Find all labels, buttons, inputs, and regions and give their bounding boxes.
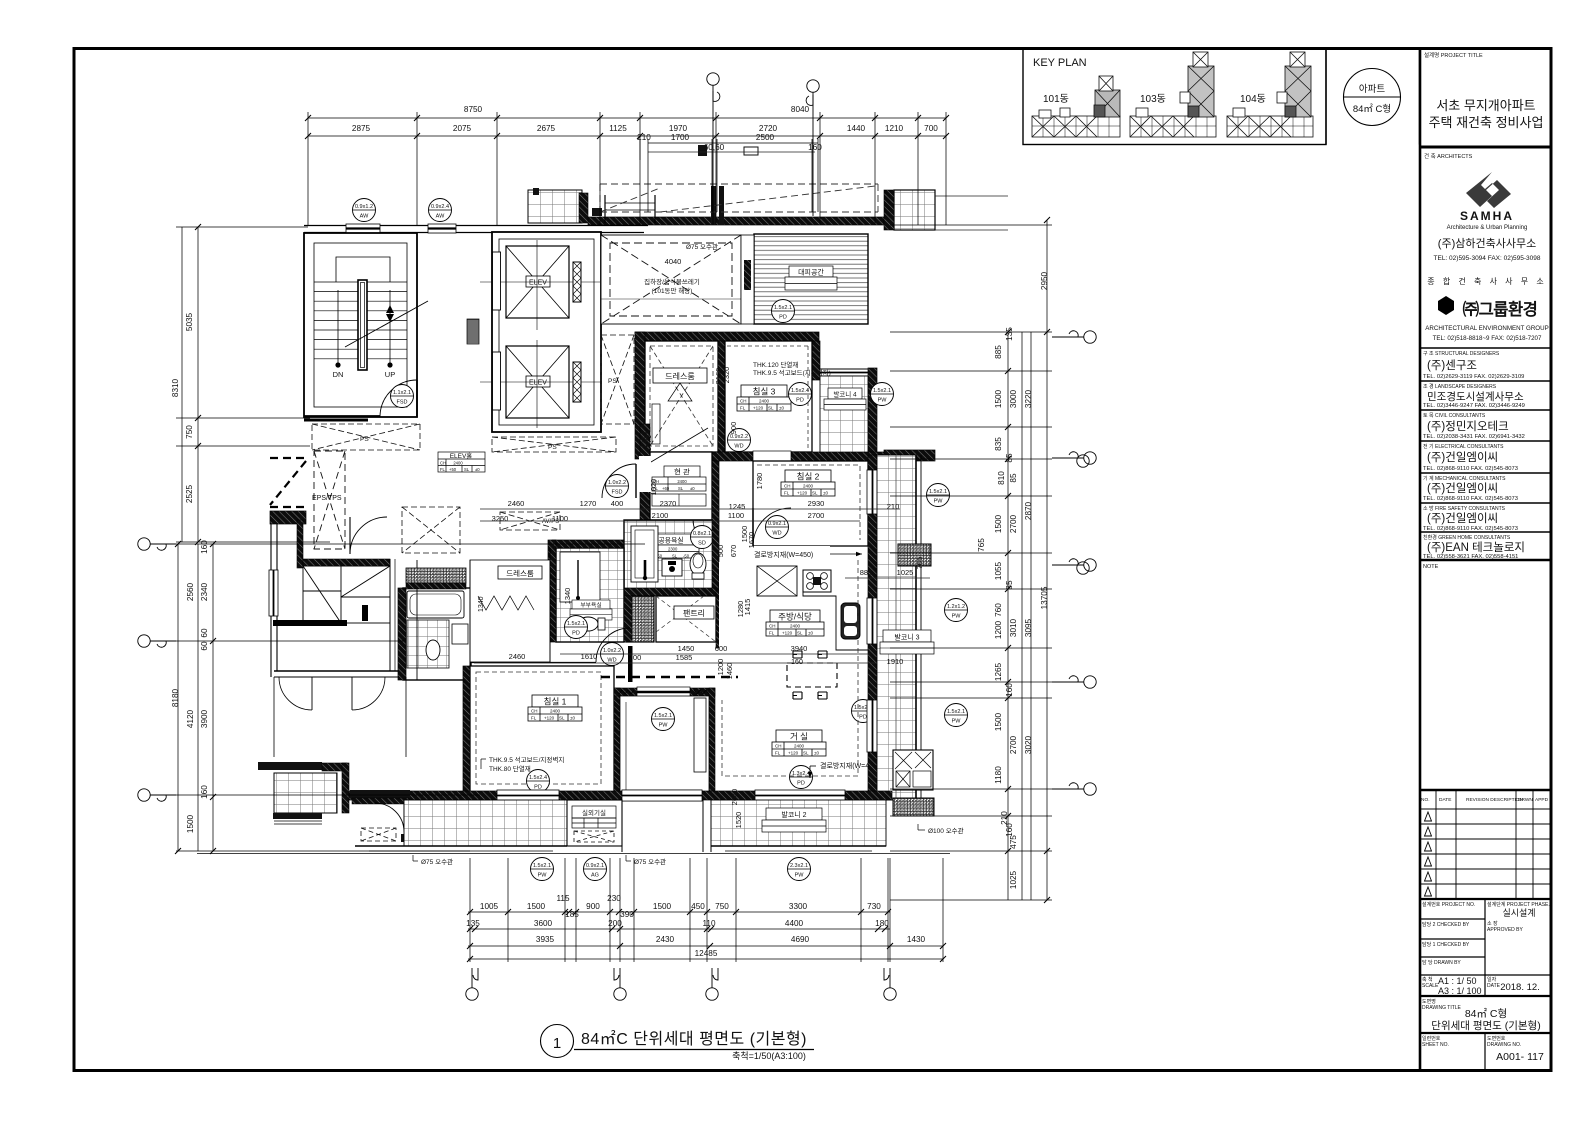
svg-text:실외기실: 실외기실	[582, 808, 606, 817]
svg-text:104동: 104동	[1240, 93, 1266, 105]
svg-text:2950: 2950	[1040, 271, 1049, 290]
svg-text:결로방지재(W=450): 결로방지재(W=450)	[754, 550, 813, 559]
svg-text:2075: 2075	[453, 124, 472, 133]
svg-text:±0: ±0	[808, 631, 813, 636]
svg-text:2460: 2460	[508, 499, 525, 508]
svg-text:12485: 12485	[695, 949, 718, 958]
svg-text:1500: 1500	[527, 902, 546, 911]
svg-text:2340: 2340	[200, 582, 209, 601]
svg-text:2700: 2700	[1009, 514, 1018, 533]
svg-text:설계단계 PROJECT PHASE.: 설계단계 PROJECT PHASE.	[1487, 901, 1550, 908]
svg-text:1125: 1125	[609, 124, 627, 133]
svg-text:103동: 103동	[1140, 93, 1166, 105]
svg-text:토 목 CIVIL CONSULTANTS: 토 목 CIVIL CONSULTANTS	[1423, 413, 1486, 419]
svg-text:500: 500	[716, 545, 725, 558]
svg-text:1520: 1520	[734, 812, 743, 829]
svg-text:AG: AG	[591, 873, 599, 879]
svg-text:FL: FL	[784, 491, 790, 496]
svg-text:건 축 ARCHITECTS: 건 축 ARCHITECTS	[1424, 152, 1473, 160]
svg-text:㈜그룹환경: ㈜그룹환경	[1463, 299, 1538, 319]
svg-text:1: 1	[553, 1035, 561, 1052]
svg-text:1.5x2.1: 1.5x2.1	[533, 863, 551, 869]
svg-text:(주)건일엠이씨: (주)건일엠이씨	[1427, 481, 1498, 495]
svg-text:+60: +60	[662, 486, 670, 491]
svg-text:APPD: APPD	[1535, 797, 1549, 803]
svg-text:DRAWING NO.: DRAWING NO.	[1487, 1042, 1521, 1048]
svg-text:(주)정민지오테크: (주)정민지오테크	[1427, 420, 1509, 433]
svg-text:8180: 8180	[171, 688, 180, 707]
svg-text:KEY PLAN: KEY PLAN	[1033, 57, 1087, 69]
svg-text:PS: PS	[360, 436, 369, 443]
svg-text:85: 85	[1009, 473, 1018, 483]
svg-text:160: 160	[200, 785, 209, 799]
svg-text:2320: 2320	[722, 367, 731, 384]
svg-text:60,60: 60,60	[704, 143, 725, 152]
svg-text:160: 160	[1005, 823, 1014, 837]
svg-text:8310: 8310	[171, 378, 180, 397]
svg-text:현 관: 현 관	[674, 467, 690, 477]
svg-text:210: 210	[637, 133, 651, 142]
svg-text:TEL. 02)3446-9247 FA: TEL. 02)3446-9247 FAX. 02)3446-9249	[1423, 403, 1525, 409]
svg-text:+120: +120	[788, 751, 799, 756]
svg-text:PD: PD	[797, 781, 805, 787]
svg-text:1670: 1670	[747, 532, 756, 549]
svg-text:WD: WD	[772, 531, 781, 537]
svg-text:전 기 ELECTRICAL CONSULTANTS: 전 기 ELECTRICAL CONSULTANTS	[1423, 443, 1504, 450]
svg-text:서초 무지개아파트: 서초 무지개아파트	[1436, 98, 1535, 113]
svg-text:PW: PW	[952, 614, 962, 620]
svg-text:2700: 2700	[1009, 735, 1018, 754]
svg-text:담당 1 CHECKED BY: 담당 1 CHECKED BY	[1422, 941, 1470, 948]
svg-text:1500: 1500	[994, 514, 1003, 533]
svg-text:1200: 1200	[994, 620, 1003, 639]
svg-text:CH: CH	[775, 744, 782, 749]
svg-text:부부욕실: 부부욕실	[580, 601, 601, 609]
svg-text:FL: FL	[775, 751, 781, 756]
svg-text:(주)EAN 테크놀로지: (주)EAN 테크놀로지	[1427, 541, 1525, 554]
svg-text:집하장/음식물쓰레기: 집하장/음식물쓰레기	[644, 277, 700, 286]
svg-text:1340: 1340	[563, 588, 572, 605]
svg-text:2430: 2430	[656, 935, 675, 944]
svg-text:±0: ±0	[475, 467, 480, 472]
svg-text:160: 160	[791, 659, 803, 666]
svg-text:침실 1: 침실 1	[544, 697, 567, 707]
svg-text:APPROVED BY: APPROVED BY	[1487, 927, 1524, 933]
svg-text:+120: +120	[544, 716, 555, 721]
svg-text:소 방 FIRE SAFETY CONSULTANTS: 소 방 FIRE SAFETY CONSULTANTS	[1423, 505, 1506, 512]
svg-text:400: 400	[611, 499, 624, 508]
svg-text:1.1x2.1: 1.1x2.1	[393, 390, 411, 396]
svg-text:THK.120 단열재: THK.120 단열재	[753, 360, 798, 369]
svg-text:2660: 2660	[730, 789, 739, 806]
svg-text:AW: AW	[360, 214, 369, 220]
svg-text:THK.80 단열재: THK.80 단열재	[489, 764, 531, 773]
svg-text:PW: PW	[934, 499, 944, 505]
svg-text:1280: 1280	[736, 601, 745, 618]
svg-text:765: 765	[915, 557, 924, 570]
svg-text:담당 2 CHECKED BY: 담당 2 CHECKED BY	[1422, 921, 1470, 928]
svg-text:1025: 1025	[1009, 870, 1018, 889]
svg-text:기 계 MECHANICAL CONSULTANTS: 기 계 MECHANICAL CONSULTANTS	[1423, 475, 1506, 482]
svg-text:210: 210	[887, 502, 900, 511]
svg-text:일자: 일자	[1487, 976, 1497, 983]
svg-text:Architecture & Urban Planning: Architecture & Urban Planning	[1447, 225, 1528, 231]
svg-text:FSD: FSD	[612, 490, 623, 496]
svg-text:실시설계: 실시설계	[1502, 907, 1535, 918]
svg-text:475: 475	[1009, 835, 1018, 849]
svg-text:84㎡C 단위세대 평면도 (기본형): 84㎡C 단위세대 평면도 (기본형)	[581, 1030, 807, 1048]
svg-text:2018. 12.: 2018. 12.	[1500, 982, 1540, 993]
svg-text:3250: 3250	[492, 514, 509, 523]
svg-text:1200: 1200	[716, 659, 725, 676]
svg-text:84㎡ C형: 84㎡ C형	[1465, 1008, 1507, 1020]
svg-text:1450: 1450	[678, 644, 695, 653]
svg-text:TEL. 02)2038-3431 FA: TEL. 02)2038-3431 FAX. 02)6941-3432	[1423, 434, 1525, 440]
svg-text:PS: PS	[608, 378, 617, 385]
svg-text:85: 85	[1005, 580, 1014, 590]
svg-text:조 경 LANDSCAPE DESIGNERS: 조 경 LANDSCAPE DESIGNERS	[1423, 383, 1497, 390]
svg-text:1500: 1500	[186, 814, 195, 833]
svg-text:1020: 1020	[649, 479, 658, 496]
svg-text:WD: WD	[607, 658, 616, 664]
svg-text:ELEV: ELEV	[529, 380, 547, 387]
svg-text:0.9x2.1: 0.9x2.1	[768, 521, 786, 527]
svg-text:TEL. 02)868-9110 FA: TEL. 02)868-9110 FAX. 02)545-8073	[1423, 526, 1518, 532]
svg-text:CH: CH	[440, 461, 446, 466]
svg-text:135: 135	[466, 919, 480, 928]
svg-text:2500: 2500	[756, 133, 775, 142]
svg-text:DRAWING TITLE: DRAWING TITLE	[1422, 1005, 1462, 1011]
svg-text:0.9x1.2: 0.9x1.2	[355, 204, 373, 210]
svg-text:1265: 1265	[994, 662, 1003, 681]
svg-text:침실 3: 침실 3	[753, 387, 776, 397]
svg-text:드레스룸: 드레스룸	[665, 372, 694, 381]
svg-text:835: 835	[994, 437, 1003, 451]
svg-text:1005: 1005	[480, 902, 499, 911]
svg-text:60: 60	[200, 628, 209, 638]
svg-text:4040: 4040	[665, 257, 682, 266]
svg-text:대피공간: 대피공간	[798, 268, 824, 277]
svg-text:Ø100 오수관: Ø100 오수관	[928, 826, 964, 835]
svg-text:1460: 1460	[725, 663, 734, 680]
svg-text:2370: 2370	[660, 499, 677, 508]
svg-text:8750: 8750	[464, 105, 483, 114]
svg-text:SL: SL	[768, 406, 774, 411]
svg-text:±0: ±0	[690, 486, 695, 491]
svg-text:180: 180	[875, 919, 889, 928]
svg-text:3010: 3010	[1009, 618, 1018, 637]
svg-text:2300: 2300	[668, 547, 678, 552]
svg-text:200: 200	[608, 919, 622, 928]
svg-text:A001- 117: A001- 117	[1496, 1051, 1544, 1063]
svg-text:아파트: 아파트	[1359, 84, 1385, 95]
svg-text:1100: 1100	[728, 511, 744, 520]
svg-text:3300: 3300	[789, 902, 808, 911]
svg-text:담 당 DRAWN BY: 담 당 DRAWN BY	[1422, 959, 1461, 966]
svg-text:단위세대 평면도 (기본형): 단위세대 평면도 (기본형)	[1431, 1019, 1540, 1032]
svg-text:+50: +50	[449, 467, 457, 472]
svg-text:(주)건일엠이씨: (주)건일엠이씨	[1427, 450, 1498, 464]
svg-text:±0: ±0	[823, 491, 828, 496]
svg-text:1.5x2.1: 1.5x2.1	[567, 621, 585, 627]
svg-text:SCALE: SCALE	[1422, 983, 1439, 989]
svg-text:1270: 1270	[580, 499, 597, 508]
svg-text:PD: PD	[859, 715, 867, 721]
svg-text:SD: SD	[698, 541, 706, 547]
svg-text:1.5x2.1: 1.5x2.1	[774, 305, 792, 311]
svg-text:1100: 1100	[552, 514, 568, 523]
svg-text:1.2x1.2: 1.2x1.2	[947, 604, 965, 610]
svg-text:1500: 1500	[994, 712, 1003, 731]
svg-text:185: 185	[565, 910, 579, 919]
svg-text:DATE: DATE	[1487, 983, 1501, 989]
svg-text:230: 230	[607, 894, 621, 903]
svg-text:3000: 3000	[1009, 389, 1018, 408]
svg-text:THK.9.5 석고보드/지정벽지: THK.9.5 석고보드/지정벽지	[489, 755, 564, 764]
svg-text:DRWN: DRWN	[1518, 797, 1533, 803]
svg-text:팬트리: 팬트리	[683, 609, 705, 618]
svg-text:FL: FL	[769, 631, 775, 636]
svg-text:3935: 3935	[536, 935, 555, 944]
svg-text:종 합 건 축 사 사 무 소: 종 합 건 축 사 사 무 소	[1427, 276, 1546, 286]
svg-text:주택 재건축 정비사업: 주택 재건축 정비사업	[1429, 115, 1544, 130]
svg-text:1440: 1440	[847, 124, 866, 133]
svg-text:1.5x2.1: 1.5x2.1	[654, 713, 672, 719]
svg-text:도면번호: 도면번호	[1487, 1035, 1506, 1042]
svg-text:8040: 8040	[791, 105, 810, 114]
svg-text:PW: PW	[659, 723, 669, 729]
svg-text:CH: CH	[531, 709, 538, 714]
svg-text:SL: SL	[559, 716, 565, 721]
svg-text:135: 135	[1005, 327, 1014, 341]
svg-text:PD: PD	[534, 785, 542, 791]
svg-text:거 실: 거 실	[790, 732, 808, 742]
svg-text:NO.: NO.	[1421, 797, 1430, 803]
svg-text:1500: 1500	[653, 902, 672, 911]
svg-text:4400: 4400	[785, 919, 804, 928]
svg-text:TEL. 02)868-9110 FA: TEL. 02)868-9110 FAX. 02)545-8073	[1423, 496, 1518, 502]
svg-text:PS: PS	[548, 444, 557, 451]
svg-text:FL: FL	[531, 716, 537, 721]
svg-text:4120: 4120	[186, 709, 195, 728]
svg-text:REVISION DESCRIPTION: REVISION DESCRIPTION	[1466, 797, 1524, 803]
svg-text:670: 670	[729, 545, 738, 558]
svg-text:885: 885	[860, 568, 873, 577]
svg-text:4690: 4690	[791, 935, 810, 944]
svg-text:2700: 2700	[808, 511, 825, 520]
svg-text:일련번호: 일련번호	[1422, 1035, 1441, 1042]
svg-text:공용욕실: 공용욕실	[658, 536, 683, 545]
svg-text:축척=1/50(A3:100): 축척=1/50(A3:100)	[732, 1051, 806, 1061]
svg-text:3600: 3600	[534, 919, 553, 928]
svg-text:2400: 2400	[550, 709, 561, 714]
svg-text:주방/식당: 주방/식당	[778, 612, 812, 622]
svg-text:TEL. 02)558-3621 FA: TEL. 02)558-3621 FAX. 02)558-4151	[1423, 554, 1518, 560]
svg-text:210: 210	[1000, 811, 1009, 825]
svg-text:2525: 2525	[185, 484, 194, 503]
svg-text:SL: SL	[803, 751, 809, 756]
svg-text:AW: AW	[436, 214, 445, 220]
svg-text:900: 900	[586, 902, 600, 911]
svg-text:축 척: 축 척	[1422, 976, 1433, 983]
svg-text:발코니 4: 발코니 4	[833, 390, 857, 399]
svg-text:810: 810	[997, 471, 1006, 485]
svg-text:1500: 1500	[994, 389, 1003, 408]
svg-text:(주)삼하건축사사무소: (주)삼하건축사사무소	[1438, 236, 1536, 250]
svg-text:765: 765	[977, 538, 986, 552]
svg-text:CH: CH	[769, 624, 776, 629]
svg-text:1970: 1970	[669, 124, 688, 133]
svg-text:FL: FL	[440, 467, 446, 472]
svg-text:SHEET NO.: SHEET NO.	[1422, 1042, 1449, 1048]
svg-text:SL: SL	[797, 631, 803, 636]
svg-text:730: 730	[867, 902, 881, 911]
svg-text:ELEV홀: ELEV홀	[450, 451, 473, 460]
svg-text:2400: 2400	[803, 484, 814, 489]
svg-text:1.5x2.4: 1.5x2.4	[529, 775, 547, 781]
svg-text:±0: ±0	[570, 716, 575, 721]
svg-text:160: 160	[200, 540, 209, 554]
svg-text:±0: ±0	[779, 406, 784, 411]
svg-text:1430: 1430	[907, 935, 926, 944]
svg-text:친환경 GREEN HOME CONSULTANTS: 친환경 GREEN HOME CONSULTANTS	[1423, 534, 1511, 541]
svg-text:1910: 1910	[887, 657, 904, 666]
svg-text:115: 115	[556, 894, 569, 903]
svg-text:SL: SL	[464, 467, 470, 472]
svg-text:SL: SL	[672, 554, 678, 559]
svg-text:5035: 5035	[185, 312, 194, 331]
svg-text:ELEV: ELEV	[529, 280, 547, 287]
svg-text:TEL. 02)868-9110 FA: TEL. 02)868-9110 FAX. 02)545-8073	[1423, 466, 1518, 472]
svg-text:1.0x2.2: 1.0x2.2	[603, 648, 621, 654]
svg-text:450: 450	[691, 902, 705, 911]
svg-text:700: 700	[924, 124, 938, 133]
svg-text:1780: 1780	[755, 473, 764, 490]
svg-text:2875: 2875	[352, 124, 371, 133]
svg-text:1210: 1210	[885, 124, 904, 133]
svg-text:160: 160	[808, 143, 822, 152]
svg-text:+120: +120	[753, 406, 764, 411]
svg-text:1610: 1610	[581, 652, 598, 661]
svg-text:NOTE: NOTE	[1423, 564, 1439, 570]
svg-text:2.3x2.1: 2.3x2.1	[790, 863, 808, 869]
svg-text:1025: 1025	[897, 568, 914, 577]
svg-text:2460: 2460	[509, 652, 526, 661]
svg-text:PW: PW	[952, 719, 962, 725]
svg-text:2400: 2400	[794, 744, 805, 749]
svg-text:설계명 PROJECT TITLE: 설계명 PROJECT TITLE	[1424, 51, 1483, 59]
svg-text:-50: -50	[683, 554, 690, 559]
svg-text:DATE: DATE	[1439, 797, 1451, 803]
svg-text:3900: 3900	[200, 709, 209, 728]
svg-text:UP: UP	[385, 370, 395, 379]
svg-text:PW: PW	[795, 873, 805, 879]
svg-text:101동: 101동	[1043, 93, 1069, 105]
svg-text:85: 85	[1005, 453, 1014, 463]
svg-text:110: 110	[702, 919, 715, 928]
svg-text:84㎡ C형: 84㎡ C형	[1353, 104, 1391, 115]
svg-text:60: 60	[200, 641, 209, 651]
svg-text:1055: 1055	[994, 561, 1003, 580]
svg-text:1700: 1700	[671, 133, 690, 142]
svg-text:(101동만 해당): (101동만 해당)	[652, 286, 693, 295]
svg-text:13705: 13705	[1040, 586, 1049, 609]
svg-text:885: 885	[994, 345, 1003, 359]
svg-text:Ø75 오수관: Ø75 오수관	[634, 857, 666, 866]
svg-text:도면명: 도면명	[1422, 998, 1436, 1005]
svg-text:(주)건일엠이씨: (주)건일엠이씨	[1427, 511, 1498, 525]
svg-text:침실 2: 침실 2	[797, 472, 820, 482]
svg-text:TEL. 02)2629-3119 FA: TEL. 02)2629-3119 FAX. 02)2629-3109	[1423, 374, 1524, 380]
svg-text:3220: 3220	[1024, 389, 1033, 408]
svg-text:3020: 3020	[1024, 735, 1033, 754]
svg-text:CH: CH	[740, 399, 747, 404]
svg-text:1.0x2.2: 1.0x2.2	[608, 480, 626, 486]
svg-text:160: 160	[1005, 683, 1014, 697]
svg-text:2675: 2675	[537, 124, 556, 133]
svg-text:A3 : 1/ 100: A3 : 1/ 100	[1438, 986, 1482, 996]
svg-text:900: 900	[729, 422, 738, 435]
svg-text:2160: 2160	[714, 368, 723, 385]
svg-text:구 조 STRUCTURAL DESIGNERS: 구 조 STRUCTURAL DESIGNERS	[1423, 351, 1500, 357]
svg-text:750: 750	[715, 902, 729, 911]
svg-text:Ø75 오수관: Ø75 오수관	[686, 242, 718, 251]
svg-text:(주)센구조: (주)센구조	[1427, 359, 1477, 372]
svg-text:PW: PW	[878, 398, 888, 404]
svg-text:390: 390	[620, 910, 634, 919]
svg-text:±0: ±0	[814, 751, 819, 756]
svg-text:2400: 2400	[453, 461, 463, 466]
svg-text:+120: +120	[797, 491, 808, 496]
svg-text:ARCHITECTURAL ENVIRONMENT GR: ARCHITECTURAL ENVIRONMENT GROUP	[1425, 325, 1548, 332]
svg-text:발코니 3: 발코니 3	[894, 633, 919, 642]
svg-text:설계번호 PROJECT NO.: 설계번호 PROJECT NO.	[1422, 901, 1475, 908]
svg-text:2560: 2560	[186, 582, 195, 601]
svg-text:DN: DN	[333, 370, 344, 379]
svg-text:PD: PD	[779, 315, 787, 321]
svg-text:600: 600	[715, 644, 728, 653]
svg-text:Ø75 오수관: Ø75 오수관	[421, 857, 453, 866]
svg-text:0.8x2.1: 0.8x2.1	[693, 531, 711, 537]
svg-text:2720: 2720	[759, 124, 778, 133]
svg-text:FL: FL	[740, 406, 746, 411]
svg-text:TEL: 02)518-8818~9 FAX: 02)51: TEL: 02)518-8818~9 FAX: 02)518-7207	[1433, 335, 1542, 342]
svg-text:1.5x2.1: 1.5x2.1	[947, 709, 965, 715]
svg-text:3095: 3095	[1024, 618, 1033, 637]
svg-text:760: 760	[994, 603, 1003, 617]
svg-text:1245: 1245	[729, 502, 746, 511]
svg-text:1.5x2.4: 1.5x2.4	[791, 388, 809, 394]
svg-text:0.9x2.4: 0.9x2.4	[431, 204, 449, 210]
svg-text:SL: SL	[678, 486, 684, 491]
svg-text:1410: 1410	[640, 432, 649, 449]
svg-text:+120: +120	[782, 631, 793, 636]
svg-text:0.9x2.1: 0.9x2.1	[586, 863, 604, 869]
svg-text:1180: 1180	[994, 766, 1003, 784]
svg-text:1340: 1340	[478, 596, 485, 612]
svg-text:민조경도시설계사무소: 민조경도시설계사무소	[1427, 390, 1524, 403]
svg-text:THK.9.5 석고보드(지정벽지): THK.9.5 석고보드(지정벽지)	[753, 368, 831, 377]
svg-text:2400: 2400	[759, 399, 770, 404]
svg-text:3940: 3940	[791, 644, 808, 653]
svg-text:PD: PD	[796, 398, 804, 404]
svg-text:드레스룸: 드레스룸	[506, 569, 534, 578]
svg-text:TEL: 02)595-3094 FAX: 02)59: TEL: 02)595-3094 FAX: 02)595-3098	[1434, 255, 1541, 262]
svg-text:2100: 2100	[652, 511, 669, 520]
svg-text:1.5x2.1: 1.5x2.1	[873, 388, 891, 394]
svg-text:2870: 2870	[1024, 501, 1033, 520]
svg-text:1.5x2.1: 1.5x2.1	[929, 489, 947, 495]
